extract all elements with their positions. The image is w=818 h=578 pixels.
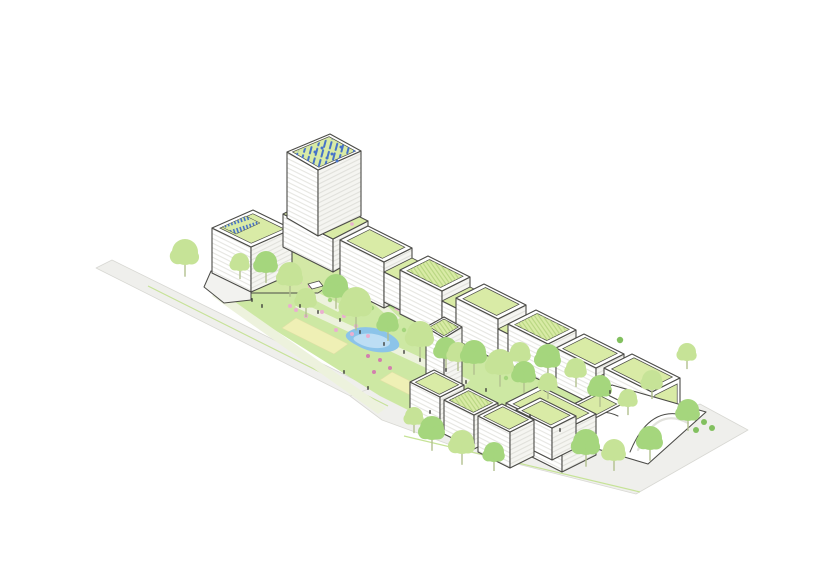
- page-background: [0, 0, 818, 578]
- masterplan-illustration: [0, 0, 818, 578]
- street-trees-left: [170, 239, 199, 277]
- masterplan-axonometric-svg: [0, 0, 818, 578]
- tree: [170, 239, 199, 277]
- tree: [676, 343, 696, 369]
